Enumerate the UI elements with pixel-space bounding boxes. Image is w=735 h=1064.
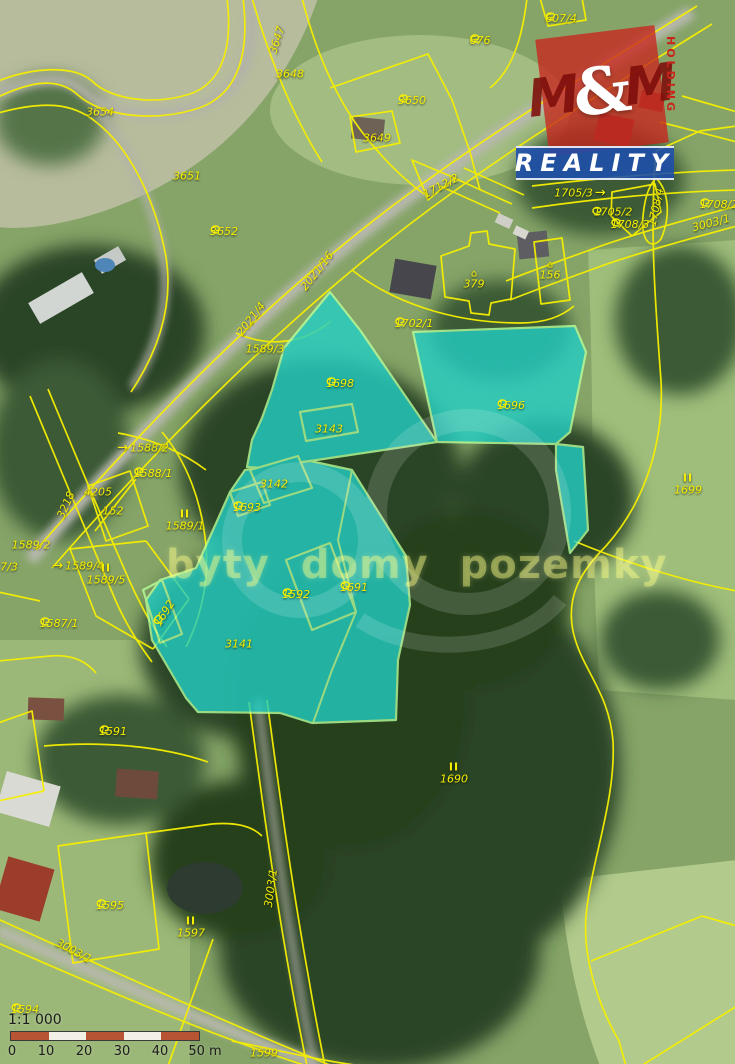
map-canvas[interactable]: byty domy pozemky 3647364836543651365036… <box>0 0 735 1064</box>
aerial-map-svg <box>0 0 735 1064</box>
